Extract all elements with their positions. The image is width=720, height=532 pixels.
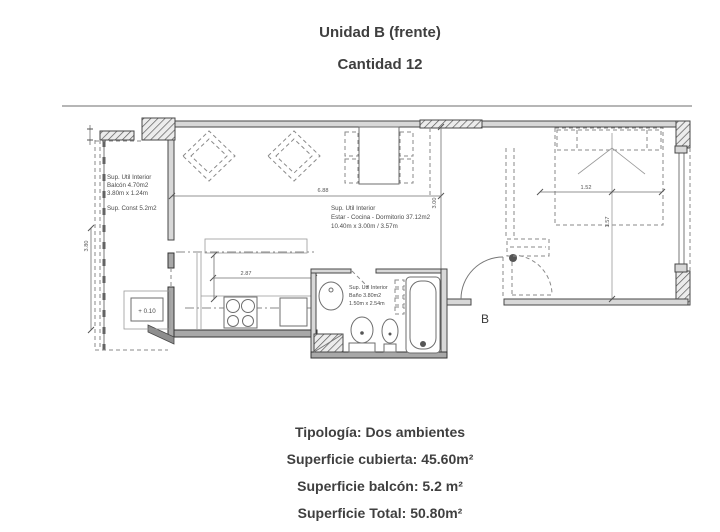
balcony-label: Sup. Util Interior Balcón 4.70m2 3.80m x… [107,174,157,212]
svg-text:Sup. Util Interior: Sup. Util Interior [331,205,375,212]
bed [555,128,663,225]
svg-text:Estar - Cocina - Dormitorio 37: Estar - Cocina - Dormitorio 37.12m2 [331,214,431,221]
svg-text:Sup. Util Interior: Sup. Util Interior [107,174,151,181]
living-dimensions: 6.88 3.00 [169,124,444,269]
balcony: + 0.10 3.80 [84,125,174,350]
toilet [351,317,373,343]
svg-text:Balcón 4.70m2: Balcón 4.70m2 [107,182,149,189]
dim-kitchen-width: 2.87 [241,271,252,277]
footer-tipologia: Tipología: Dos ambientes [40,424,720,440]
main-room-label: Sup. Util Interior Estar - Cocina - Dorm… [331,205,431,230]
footer-superficie-balcon: Superficie balcón: 5.2 m² [40,478,720,494]
footer-superficie-total: Superficie Total: 50.80m² [40,505,720,521]
level-label: + 0.10 [138,308,156,315]
svg-text:10.40m x 3.00m / 3.57m: 10.40m x 3.00m / 3.57m [331,223,398,230]
bathroom: Sup. Util Interior Baño 3.80m2 1.50m x 2… [311,269,447,358]
dim-balcony-length: 3.80 [84,241,90,252]
dim-living-width: 6.88 [318,188,329,194]
dim-living-height: 3.00 [432,198,438,209]
bidet [382,319,398,343]
kitchen: 2.87 [176,239,317,330]
bedroom: 1.52 1.57 [537,128,665,302]
door-hinge [509,254,517,262]
stove [224,297,257,328]
svg-text:1.50m x 2.54m: 1.50m x 2.54m [349,301,385,307]
svg-text:3.80m x 1.24m: 3.80m x 1.24m [107,190,148,197]
footer-superficie-cubierta: Superficie cubierta: 45.60m² [40,451,720,467]
living-furniture [183,127,413,184]
bathroom-sink [319,282,343,310]
dim-bed-length: 1.57 [605,217,611,228]
svg-text:Baño 3.80m2: Baño 3.80m2 [349,293,381,299]
svg-text:Sup. Const 5.2m2: Sup. Const 5.2m2 [107,205,157,212]
unit-label: B [481,312,489,326]
dim-bed-width: 1.52 [581,185,592,191]
fridge [280,298,307,326]
svg-text:Sup. Util Interior: Sup. Util Interior [349,285,388,291]
